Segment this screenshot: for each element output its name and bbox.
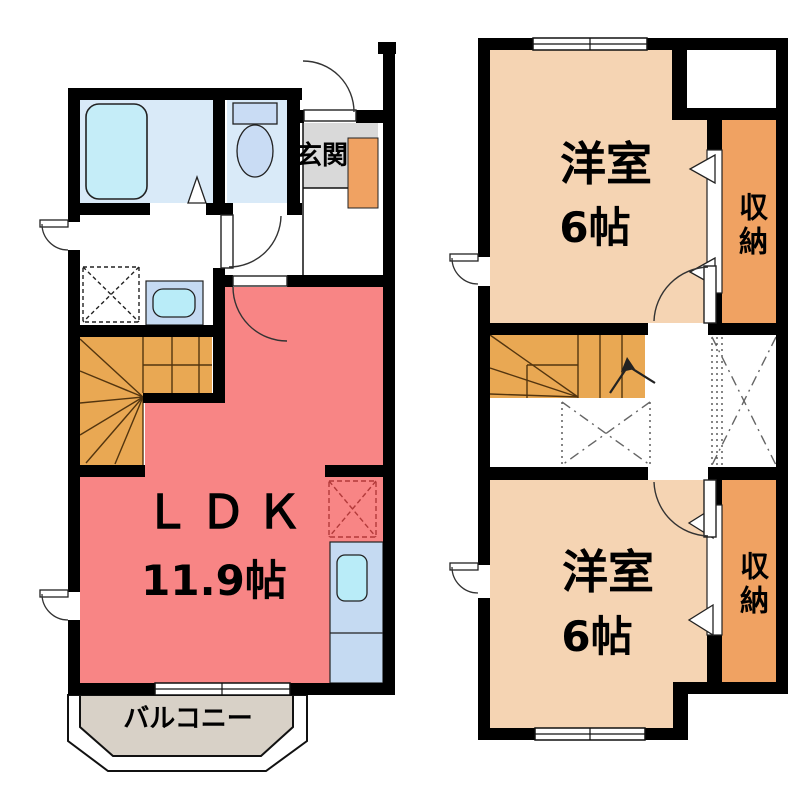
washroom-window-leaf [40,220,68,227]
room-top-window-leaf [450,254,478,261]
ldk-door-leaf [233,276,287,286]
room-bottom-size-label: 6帖 [561,616,632,658]
balcony-label: バルコニー [123,706,252,732]
room-bottom-door-leaf [704,480,716,537]
toilet-bowl [237,125,273,177]
washroom-window-swing-icon [42,224,68,250]
ldk-balcony-window-icon [155,683,290,695]
shoe-cabinet [348,138,378,208]
floor-plan-drawing [0,0,800,800]
ldk-label: ＬＤＫ [144,489,312,535]
room-bottom-label: 洋室 [562,549,654,595]
floor-plan: 玄関 ＬＤＫ 11.9帖 バルコニー 洋室 6帖 洋室 6帖 収納 収納 [0,0,800,800]
kitchen-sink [337,555,367,601]
room-top-window-swing-icon [452,258,478,284]
washing-machine-space-icon [83,267,139,322]
ldk-side-window-swing-icon [42,594,68,620]
ldk-side-window-leaf [40,590,68,597]
storage-top-label: 収納 [737,192,766,260]
washbasin-bowl [153,289,195,317]
room-top-label: 洋室 [560,141,652,187]
room-top-door-leaf [704,266,716,323]
toilet-door-leaf [221,215,233,268]
genkan-label: 玄関 [296,143,348,169]
room-bottom-window-swing-icon [452,567,478,593]
bathtub [86,104,147,199]
entrance-door-leaf [304,110,356,121]
room-top-sliding-window-icon [533,38,647,50]
storage-bottom-label: 収納 [738,551,767,619]
room-bottom-sliding-window-icon [535,728,645,740]
entrance-door-swing-icon [303,61,354,112]
toilet-door-swing-icon [229,216,281,267]
room-bottom-window-leaf [450,563,478,570]
room-top-size-label: 6帖 [559,207,630,249]
toilet-tank [233,103,277,124]
ldk-size-label: 11.9帖 [141,560,287,602]
